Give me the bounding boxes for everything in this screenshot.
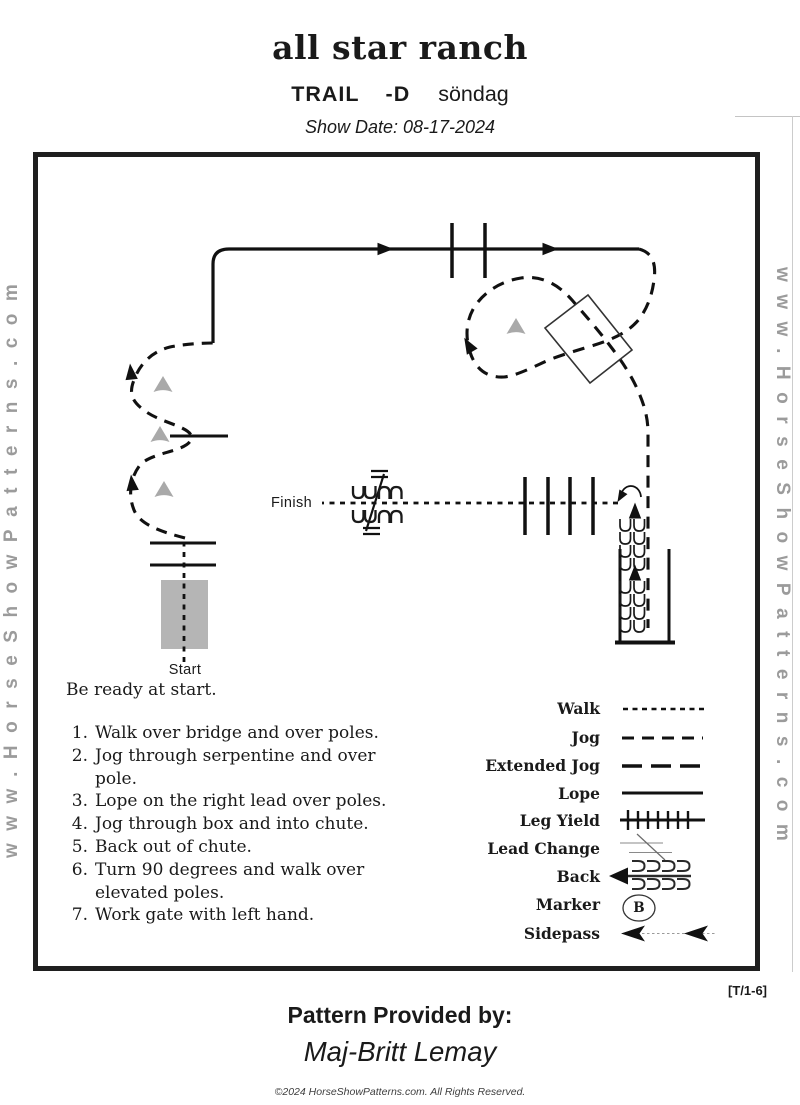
legend-label-leadchange: Lead Change xyxy=(400,839,600,858)
instruction-item: 5.Back out of chute. xyxy=(66,836,418,859)
show-day: söndag xyxy=(438,82,509,106)
legend-label-walk: Walk xyxy=(400,699,600,718)
legend-label-sidepass: Sidepass xyxy=(400,924,600,943)
legend-marker-letter: B xyxy=(625,900,653,916)
ranch-title: all star ranch xyxy=(0,28,800,67)
instruction-item: 3.Lope on the right lead over poles. xyxy=(66,790,418,813)
pattern-sheet: { "header": { "ranch_title": "all star r… xyxy=(0,0,800,1105)
instructions-list: 1.Walk over bridge and over poles. 2.Jog… xyxy=(66,722,418,927)
copyright-notice: ©2024 HorseShowPatterns.com. All Rights … xyxy=(0,1086,800,1098)
legend-label-lope: Lope xyxy=(400,784,600,803)
legend-label-jog: Jog xyxy=(400,728,600,747)
class-label: TRAIL xyxy=(291,82,359,106)
class-suffix: -D xyxy=(386,82,411,106)
watermark-right: www.HorseShowPatterns.com xyxy=(761,153,793,967)
provider-name: Maj-Britt Lemay xyxy=(0,1036,800,1068)
class-line: TRAIL-Dsöndag xyxy=(0,82,800,107)
instruction-item: 4.Jog through box and into chute. xyxy=(66,813,418,836)
watermark-left: www.HorseShowPatterns.com xyxy=(1,158,31,972)
instruction-item: 6.Turn 90 degrees and walk over elevated… xyxy=(66,859,418,905)
legend-label-extjog: Extended Jog xyxy=(400,756,600,775)
start-label: Start xyxy=(158,662,212,678)
instruction-item: 2.Jog through serpentine and over pole. xyxy=(66,745,418,791)
legend-label-legyield: Leg Yield xyxy=(400,811,600,830)
show-date: Show Date: 08-17-2024 xyxy=(0,117,800,138)
legend-label-back: Back xyxy=(400,867,600,886)
instruction-item: 1.Walk over bridge and over poles. xyxy=(66,722,418,745)
pattern-ref: [T/1-6] xyxy=(728,983,767,998)
finish-label: Finish xyxy=(271,495,312,511)
instruction-item: 7.Work gate with left hand. xyxy=(66,904,418,927)
instructions-intro: Be ready at start. xyxy=(66,680,217,700)
legend-label-marker: Marker xyxy=(400,895,600,914)
provided-by-heading: Pattern Provided by: xyxy=(0,1002,800,1029)
